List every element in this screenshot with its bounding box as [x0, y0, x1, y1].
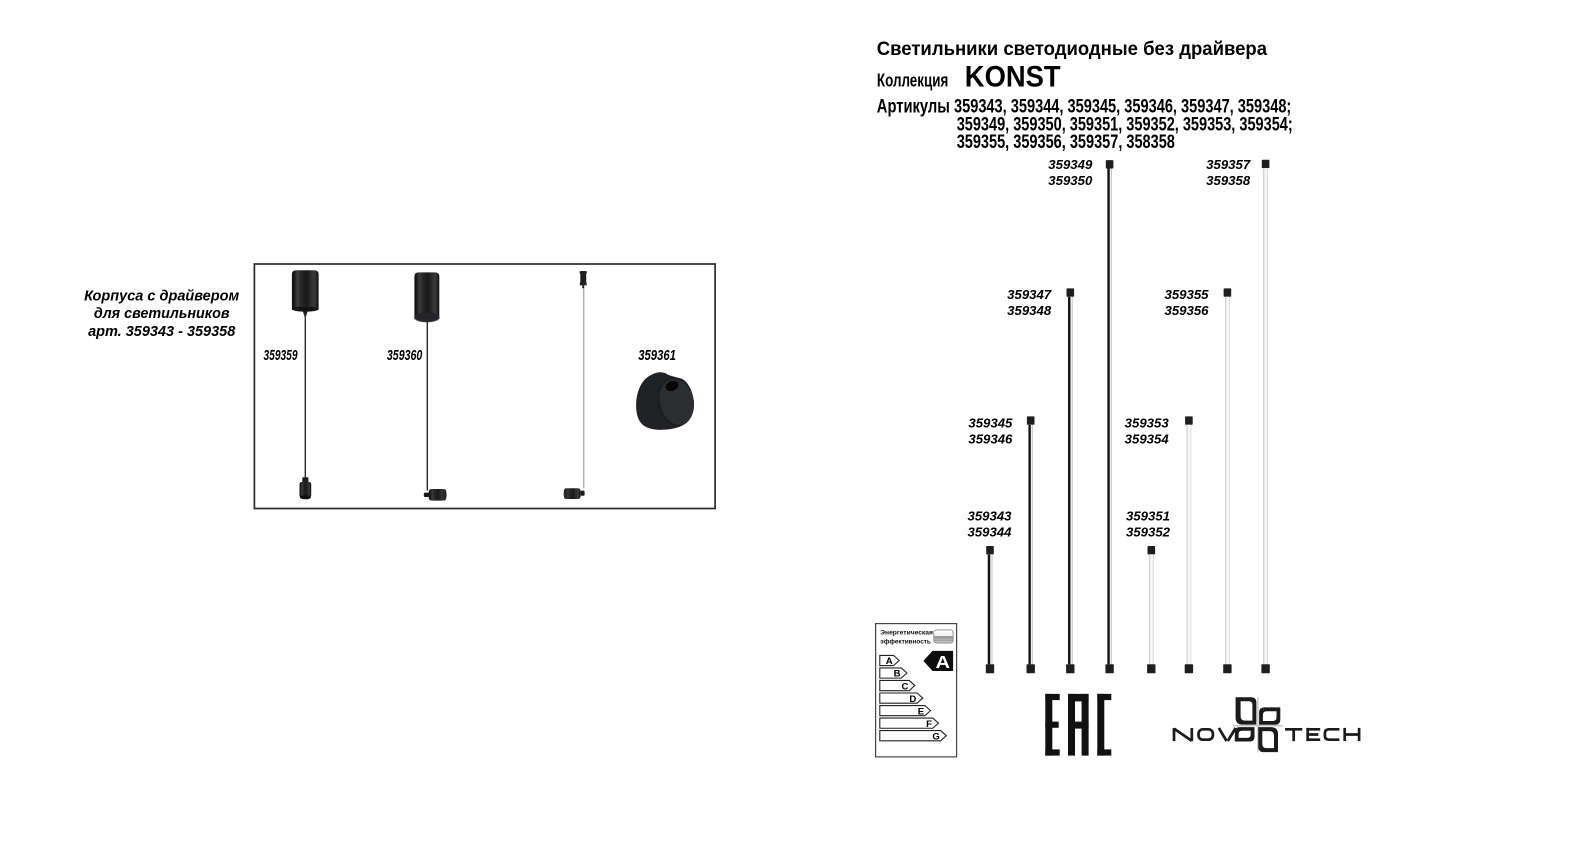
svg-text:арт. 359343 - 359358: арт. 359343 - 359358: [88, 324, 235, 340]
svg-text:359355, 359356, 359357, 358358: 359355, 359356, 359357, 358358: [957, 131, 1175, 153]
svg-text:G: G: [932, 731, 939, 742]
svg-text:359356: 359356: [1165, 303, 1210, 318]
svg-text:Светильники светодиодные без д: Светильники светодиодные без драйвера: [877, 38, 1268, 60]
svg-text:359350: 359350: [1048, 173, 1092, 188]
svg-text:359354: 359354: [1125, 431, 1169, 446]
svg-text:359360: 359360: [387, 348, 422, 364]
svg-text:KONST: KONST: [965, 60, 1061, 93]
svg-text:A: A: [936, 652, 951, 672]
svg-text:359343: 359343: [968, 509, 1012, 524]
svg-text:для светильников: для светильников: [94, 306, 230, 322]
svg-text:C: C: [901, 681, 908, 692]
svg-text:359359: 359359: [264, 348, 298, 364]
svg-text:359358: 359358: [1206, 173, 1251, 188]
svg-text:D: D: [909, 694, 916, 705]
svg-text:A: A: [886, 656, 893, 667]
svg-text:Энергетическая: Энергетическая: [880, 630, 933, 637]
svg-text:Корпуса с драйвером: Корпуса с драйвером: [84, 289, 239, 305]
svg-text:359348: 359348: [1007, 303, 1052, 318]
svg-text:359351: 359351: [1126, 509, 1170, 524]
svg-text:359344: 359344: [968, 524, 1012, 539]
svg-text:B: B: [894, 669, 901, 680]
svg-text:359349: 359349: [1048, 157, 1093, 172]
svg-text:F: F: [926, 719, 932, 730]
svg-text:359352: 359352: [1126, 524, 1170, 539]
svg-text:359353: 359353: [1125, 416, 1169, 431]
svg-text:359355: 359355: [1165, 287, 1210, 302]
svg-text:эффективность: эффективность: [880, 639, 931, 646]
svg-text:359361: 359361: [638, 348, 676, 364]
svg-text:Артикулы: Артикулы: [877, 96, 950, 118]
svg-text:359346: 359346: [968, 431, 1013, 446]
svg-text:359345: 359345: [968, 416, 1013, 431]
svg-text:359347: 359347: [1007, 287, 1052, 302]
svg-text:Коллекция: Коллекция: [877, 69, 948, 90]
svg-text:359357: 359357: [1206, 157, 1251, 172]
svg-text:E: E: [918, 706, 925, 717]
